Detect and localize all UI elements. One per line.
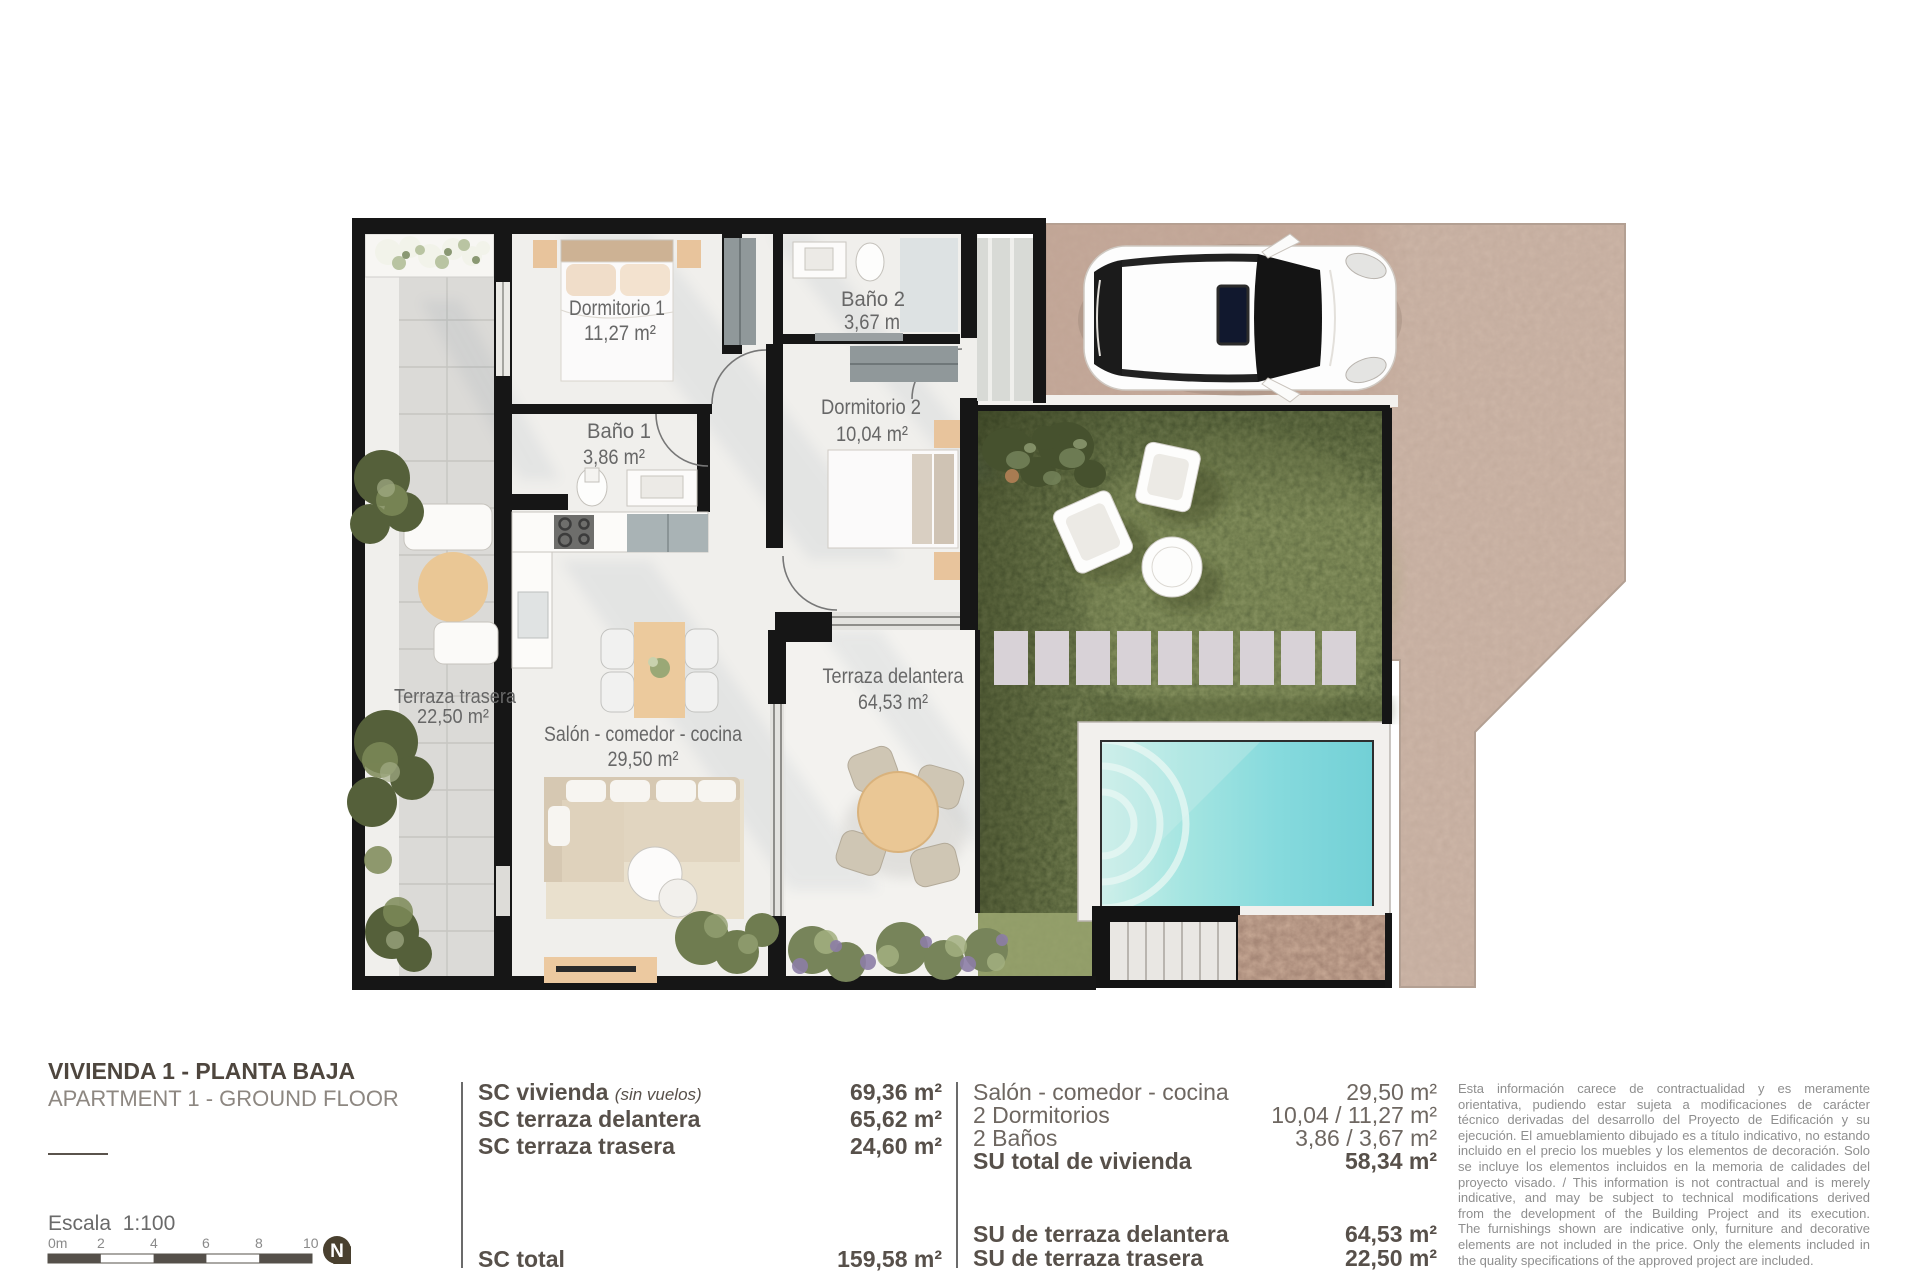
svg-text:Dormitorio 1: Dormitorio 1: [569, 297, 665, 320]
svg-text:3,86 m²: 3,86 m²: [583, 446, 645, 469]
svg-text:4: 4: [150, 1236, 158, 1251]
svg-text:6: 6: [202, 1236, 210, 1251]
svg-text:0m: 0m: [48, 1236, 67, 1251]
svg-text:29,50 m²: 29,50 m²: [608, 748, 679, 771]
svg-text:22,50 m²: 22,50 m²: [417, 706, 489, 728]
svg-text:Baño 2: Baño 2: [841, 288, 905, 311]
svg-text:64,53 m²: 64,53 m²: [858, 691, 928, 714]
svg-text:Salón - comedor - cocina: Salón - comedor - cocina: [544, 723, 742, 746]
svg-text:8: 8: [255, 1236, 263, 1251]
svg-text:Dormitorio 2: Dormitorio 2: [821, 396, 921, 419]
svg-text:Terraza trasera: Terraza trasera: [394, 686, 517, 708]
svg-text:Baño 1: Baño 1: [587, 420, 651, 443]
svg-text:10,04 m²: 10,04 m²: [836, 423, 908, 446]
svg-text:3,67 m: 3,67 m: [844, 311, 900, 334]
svg-text:10: 10: [303, 1236, 319, 1251]
svg-text:11,27 m²: 11,27 m²: [584, 322, 656, 345]
svg-text:N: N: [330, 1241, 344, 1262]
svg-text:Terraza delantera: Terraza delantera: [823, 665, 964, 688]
svg-text:2: 2: [97, 1236, 105, 1251]
